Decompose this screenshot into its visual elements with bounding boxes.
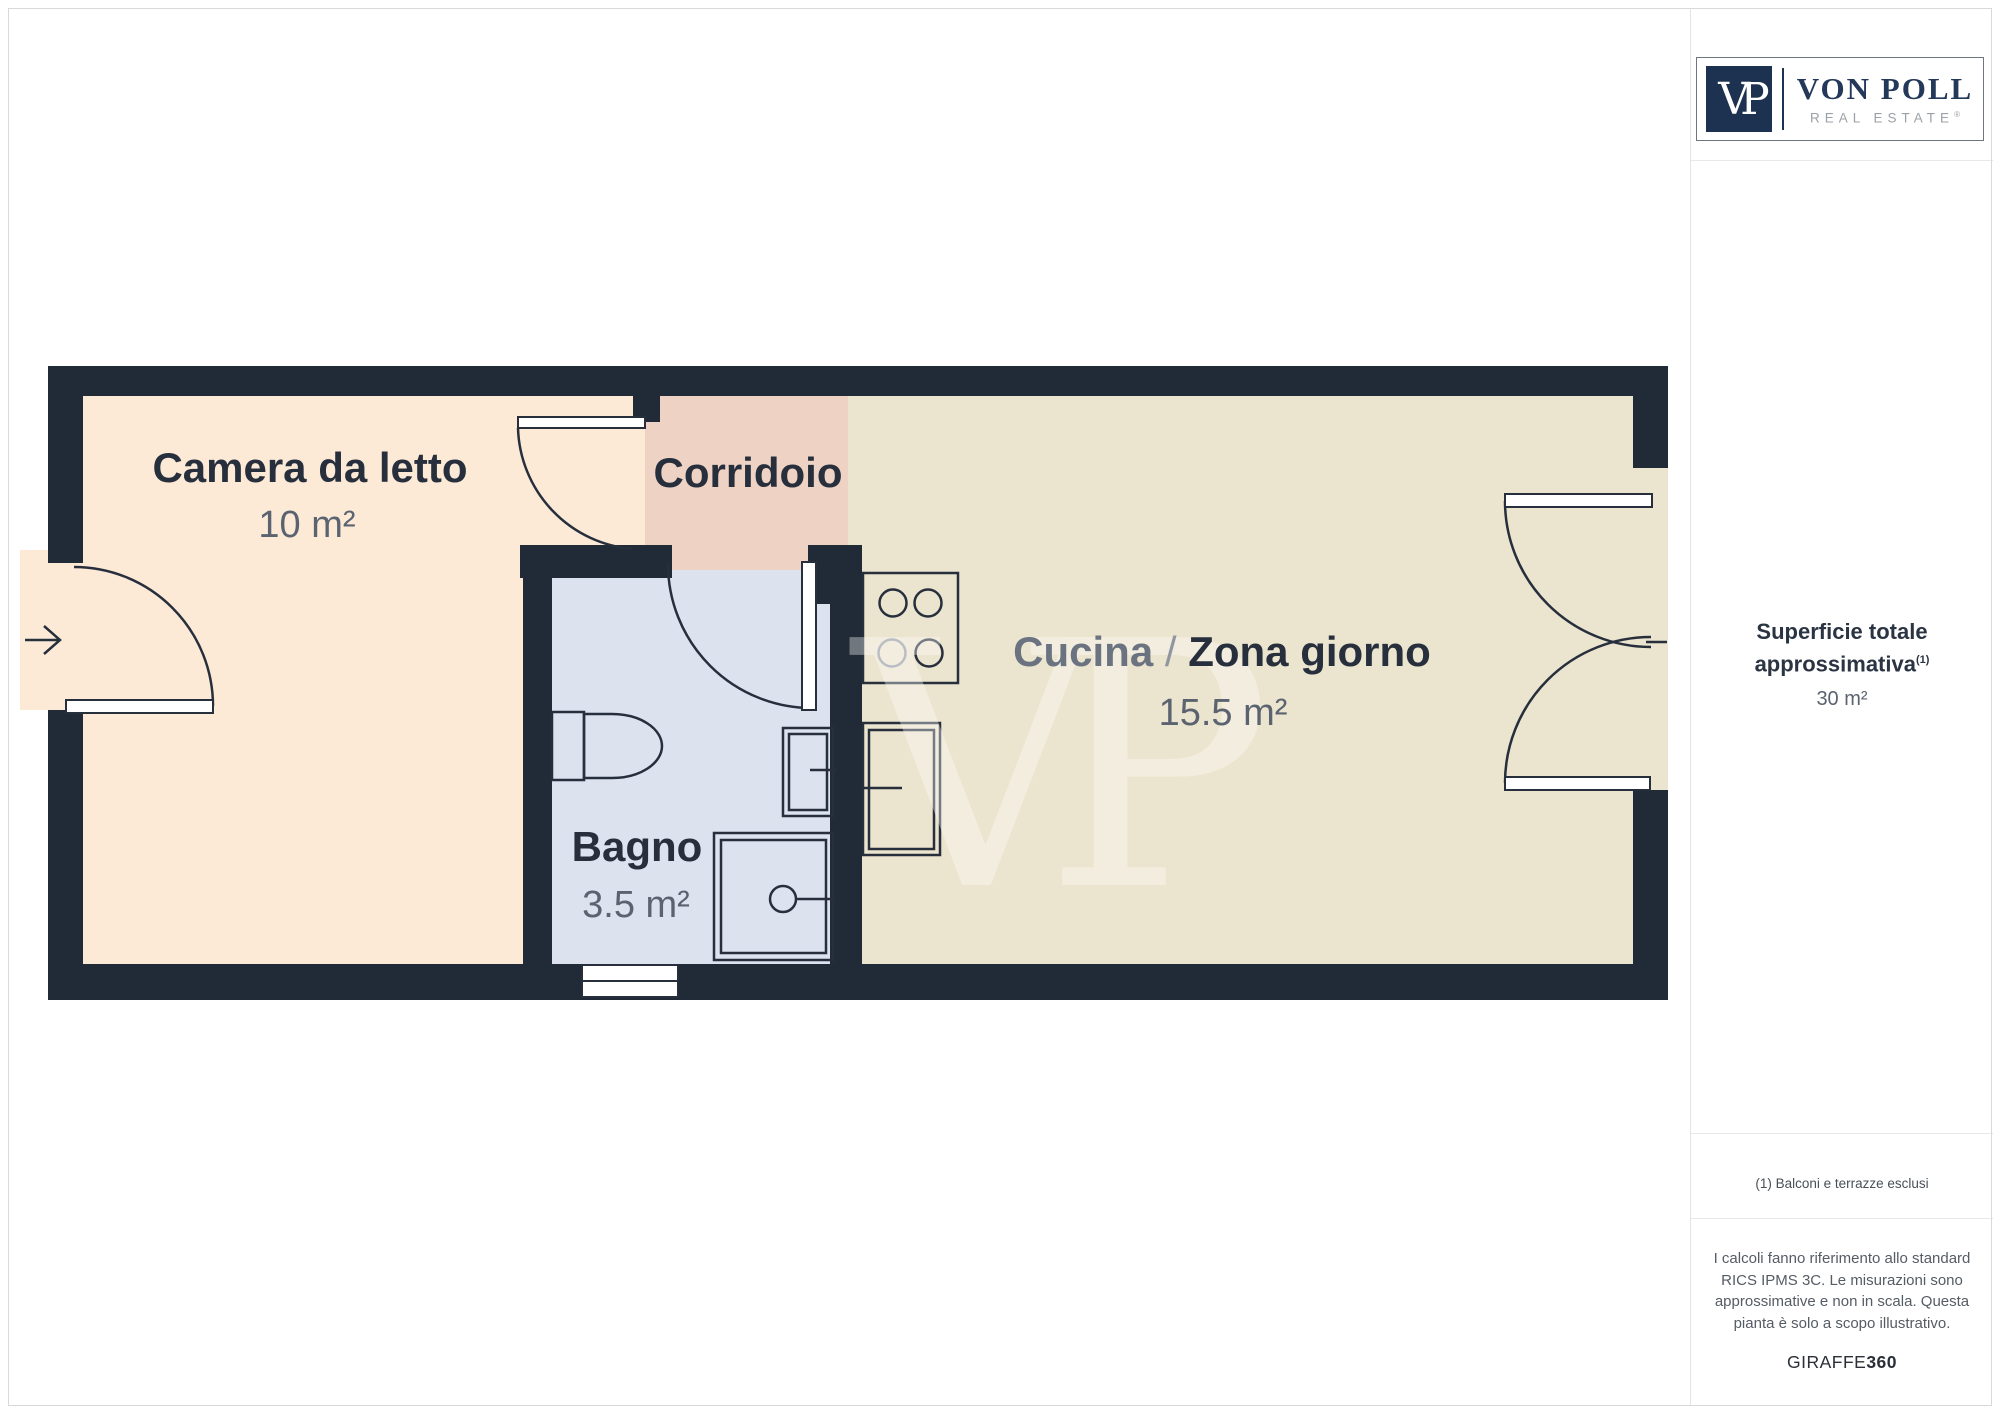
total-area-label-line2-text: approssimativa: [1755, 651, 1916, 676]
wall-left-upper: [48, 366, 83, 563]
disclaimer-line: RICS IPMS 3C. Le misurazioni sono: [1701, 1270, 1983, 1292]
wall-right-upper: [1633, 366, 1668, 468]
wall-bathroom-left: [523, 545, 552, 964]
bathroom-window-icon: [582, 965, 678, 997]
vp-monogram-icon: VP: [1706, 66, 1772, 132]
vp-monogram-text: VP: [1718, 74, 1759, 125]
sidebar-divider: [1691, 1218, 1993, 1219]
brand-tagline-text: REAL ESTATE: [1810, 110, 1954, 125]
giraffe-text: GIRAFFE: [1787, 1352, 1866, 1372]
total-area-block: Superficie totale approssimativa(1) 30 m…: [1691, 618, 1993, 711]
footnote-marker: (1): [1916, 654, 1929, 666]
disclaimer: I calcoli fanno riferimento allo standar…: [1701, 1248, 1983, 1334]
brand-name: VON POLL: [1796, 73, 1974, 106]
disclaimer-line: approssimative e non in scala. Questa: [1701, 1291, 1983, 1313]
page: VP Camera da letto 10 m² Corridoio Cucin…: [0, 0, 2000, 1414]
bedroom-label: Camera da letto: [152, 444, 467, 491]
entry-door-leaf: [66, 700, 213, 713]
wall-bottom: [48, 964, 1668, 1000]
bedroom-area: 10 m²: [258, 504, 355, 546]
wall-right-lower: [1633, 790, 1668, 1000]
kitchen-label-zona-giorno: Zona giorno: [1188, 628, 1431, 675]
bathroom-door-leaf: [802, 562, 816, 710]
bedroom-door-leaf: [518, 417, 645, 428]
wall-top: [48, 366, 1668, 396]
kitchen-area: 15.5 m²: [1159, 692, 1288, 734]
wall-left-lower: [48, 710, 83, 1000]
balcony-door-bottom-leaf: [1505, 777, 1650, 790]
kitchen-label-separator: /: [1153, 628, 1188, 675]
von-poll-logo: VP VON POLL REAL ESTATE®: [1696, 57, 1984, 141]
bathroom-area: 3.5 m²: [582, 884, 690, 926]
giraffe-360: 360: [1866, 1352, 1897, 1372]
balcony-door-top-leaf: [1505, 494, 1652, 507]
registered-mark: ®: [1954, 110, 1960, 119]
logo-text: VON POLL REAL ESTATE®: [1796, 73, 1974, 125]
total-area-label: Superficie totale approssimativa(1): [1691, 618, 1993, 678]
sidebar-divider: [1691, 1133, 1993, 1134]
total-area-label-line1: Superficie totale: [1691, 618, 1993, 646]
bathroom-label: Bagno: [572, 823, 703, 870]
logo-divider: [1782, 68, 1784, 130]
footnote: (1) Balconi e terrazze esclusi: [1691, 1176, 1993, 1191]
total-area-value: 30 m²: [1691, 688, 1993, 711]
wall-bathroom-top: [520, 545, 672, 578]
kitchen-label-cucina: Cucina: [1013, 628, 1154, 675]
giraffe360-brand: GIRAFFE360: [1691, 1352, 1993, 1373]
sidebar: VP VON POLL REAL ESTATE® Superficie tota…: [1690, 8, 1993, 1406]
total-area-label-line2: approssimativa(1): [1691, 646, 1993, 678]
disclaimer-line: I calcoli fanno riferimento allo standar…: [1701, 1248, 1983, 1270]
entry-alcove-floor: [20, 550, 83, 710]
corridor-label: Corridoio: [654, 449, 843, 496]
disclaimer-line: pianta è solo a scopo illustrativo.: [1701, 1313, 1983, 1335]
sidebar-divider: [1691, 160, 1993, 161]
kitchen-label: Cucina / Zona giorno: [1013, 628, 1431, 675]
brand-tagline: REAL ESTATE®: [1796, 110, 1974, 126]
kitchen-door-recess-floor: [1633, 468, 1668, 790]
